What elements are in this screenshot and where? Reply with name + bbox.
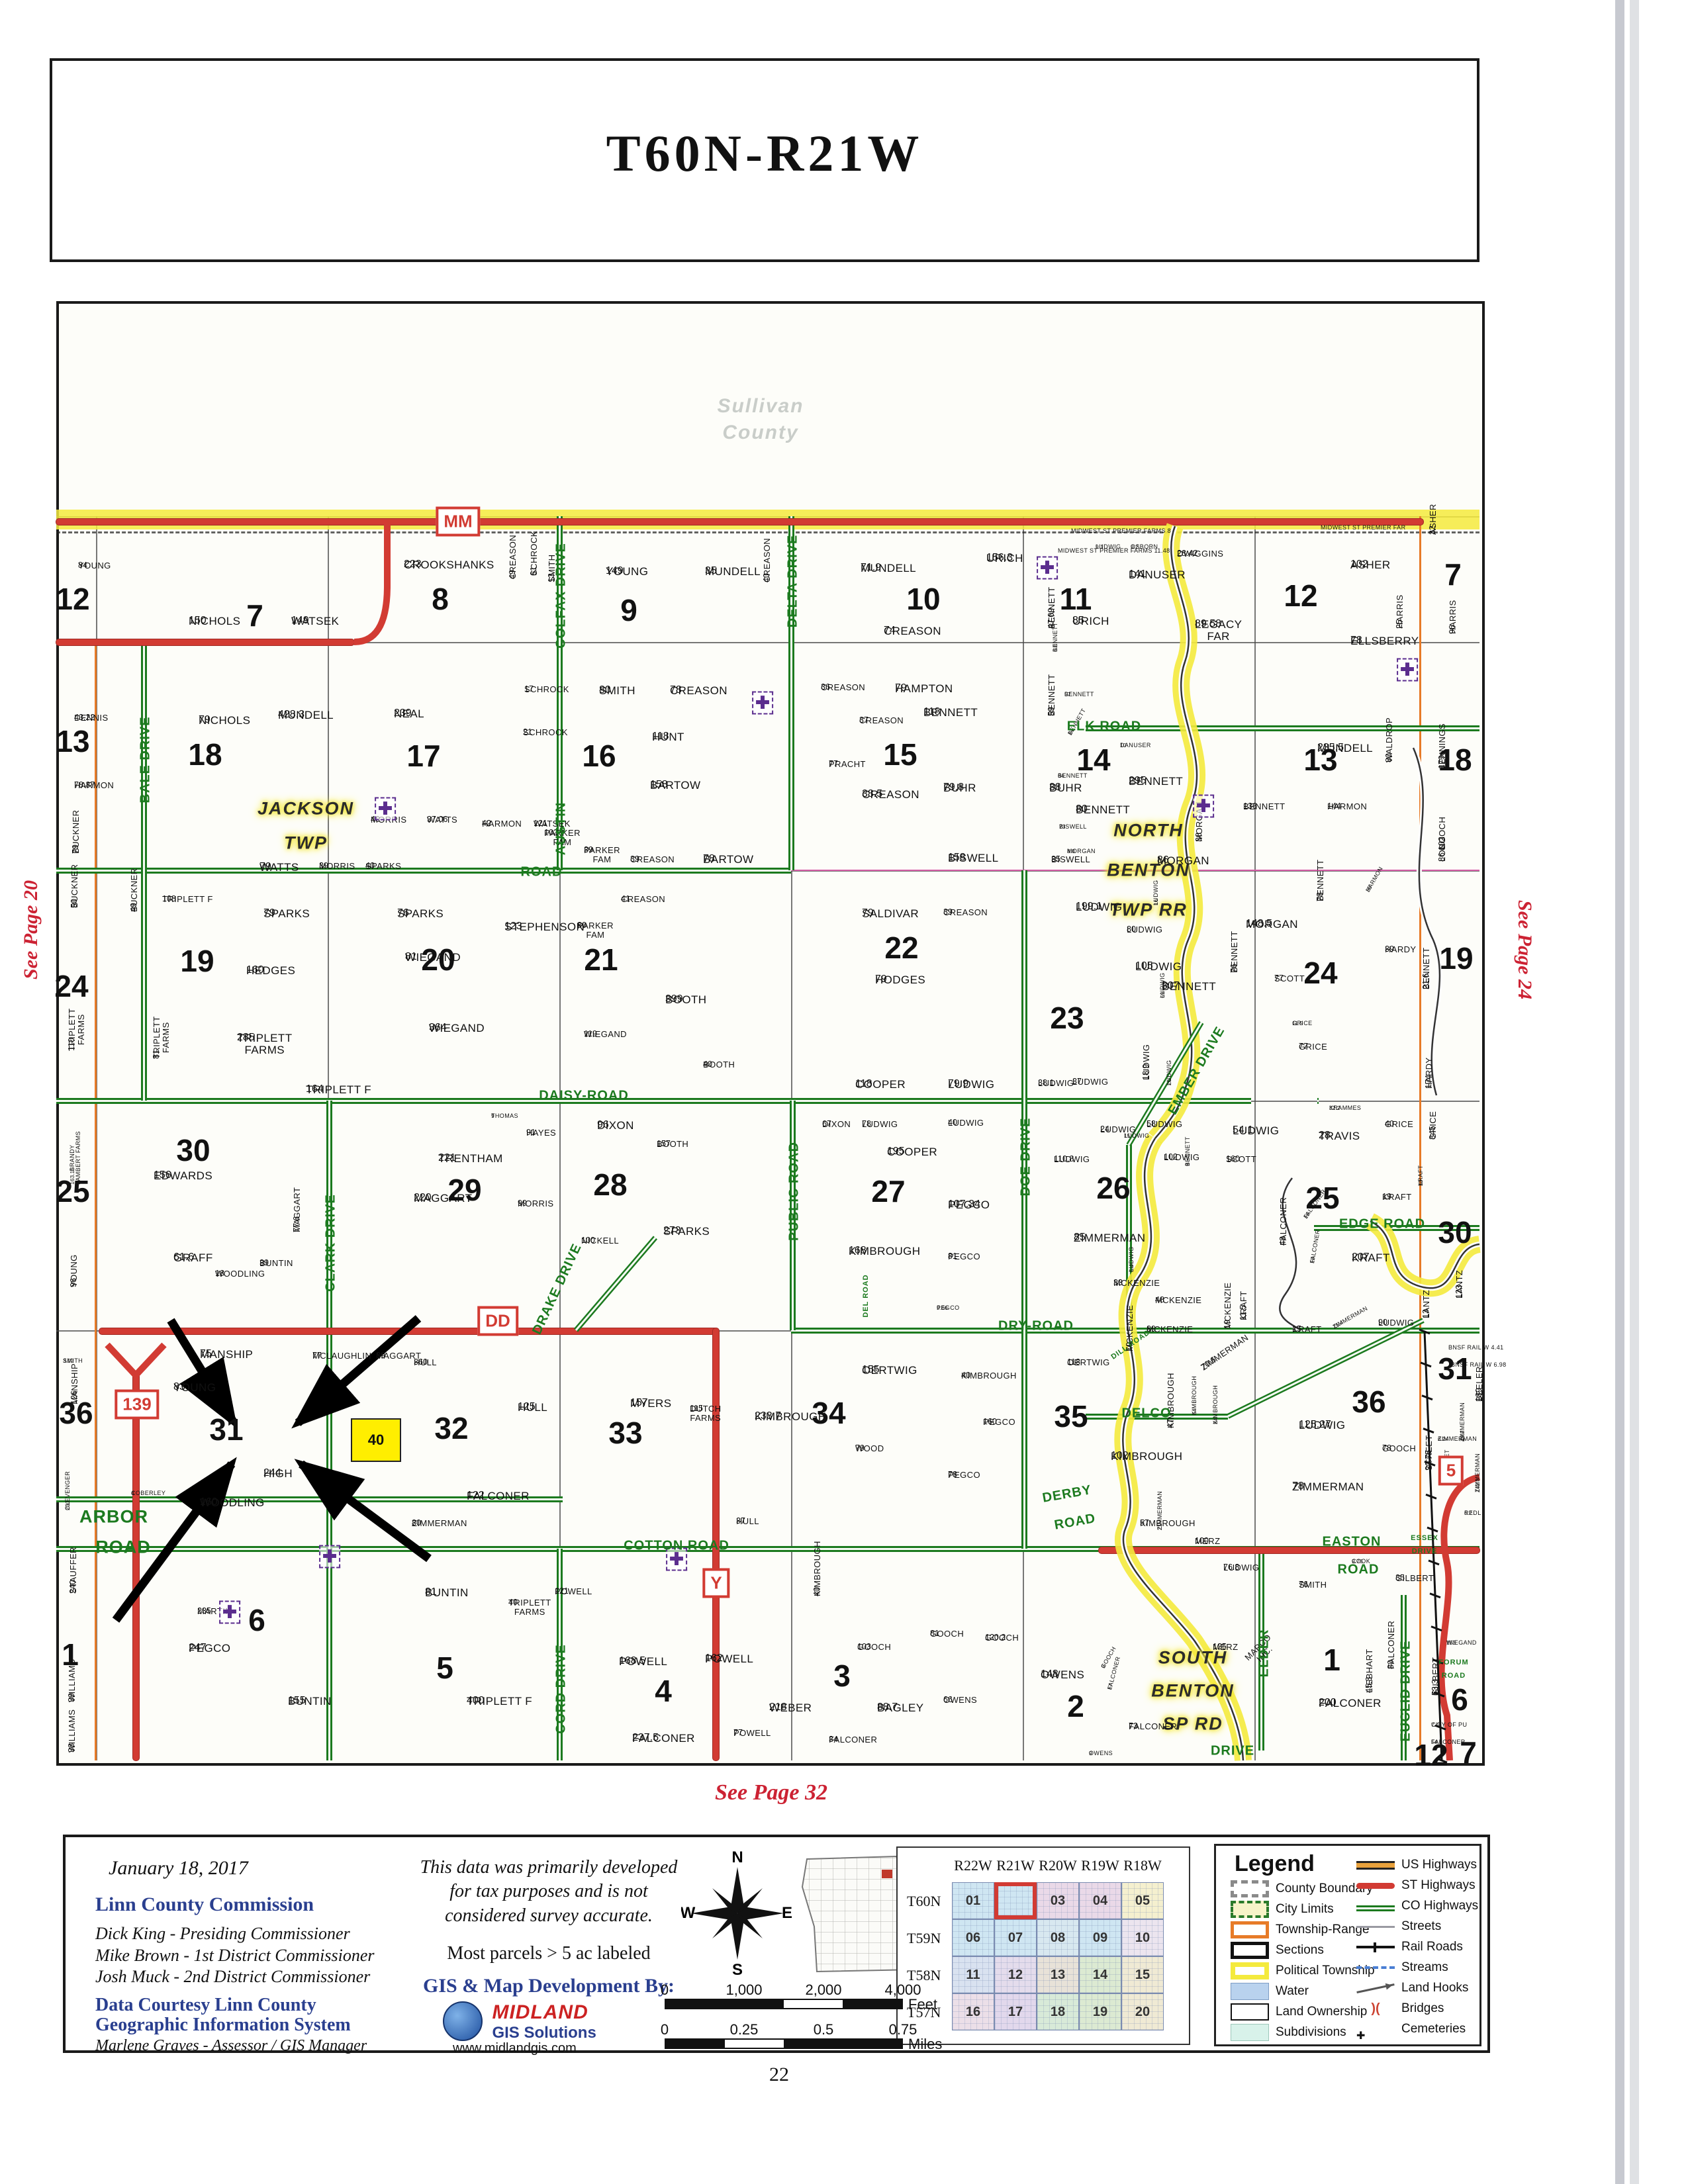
legend-label: City Limits (1276, 1902, 1334, 1917)
poltwp-swatch (1231, 1962, 1269, 1979)
section-number: 22 (884, 930, 918, 966)
legend-item: City Limits (1231, 1901, 1334, 1918)
subdiv-swatch (1231, 2024, 1269, 2041)
svg-text:E: E (782, 1904, 792, 1922)
road-name-label: ARBOR (79, 1507, 148, 1527)
section-number: 24 (54, 968, 88, 1004)
section-number: 21 (584, 942, 618, 978)
globe-icon (443, 2001, 483, 2041)
road-name-label: ELDER (1257, 1629, 1272, 1678)
locator-cell: 06 (952, 1919, 994, 1956)
locator-cell: 10 (1121, 1919, 1164, 1956)
section-number: 30 (176, 1132, 210, 1168)
cemetery-icon: ✚ (1397, 659, 1418, 682)
locator-cell: 15 (1121, 1956, 1164, 1993)
road-name-label: DELTA DRIVE (786, 535, 801, 628)
scale-tick: 2,000 (805, 1981, 841, 1999)
cemetery-icon: ✚ (219, 1601, 240, 1624)
section-number: 19 (1439, 940, 1473, 976)
stream-icon (1356, 1966, 1395, 1969)
section-number: 26 (1096, 1170, 1130, 1206)
road-name-label: CORD DRIVE (554, 1644, 569, 1734)
page-title: T60N-R21W (52, 124, 1477, 183)
locator-col-header: R21W (994, 1857, 1037, 1874)
legend-item: County Boundary (1231, 1880, 1373, 1897)
see-page-left: See Page 20 (20, 880, 42, 979)
locator-row-header: T59N (907, 1930, 941, 1947)
section-number: 12 (56, 581, 89, 617)
section-number: 9 (620, 592, 637, 628)
section-number: 32 (434, 1410, 468, 1446)
compass-rose: N W E S (681, 1850, 794, 1979)
section-number: 5 (436, 1650, 453, 1686)
sections-swatch (1231, 1942, 1269, 1959)
locator-cell: 19 (1079, 1993, 1121, 2030)
road-name-label: ROAD (95, 1537, 151, 1558)
logo-line1: MIDLAND (492, 2001, 588, 2023)
commissioner-line: Mike Brown - 1st District Commissioner (95, 1945, 375, 1967)
street-icon (1356, 1926, 1395, 1928)
road-name-label: DAISY-ROAD (539, 1089, 629, 1104)
scalebar-miles: 00.250.50.75Miles (665, 2021, 949, 2052)
gis-by-label: GIS & Map Development By: (423, 1975, 675, 1997)
road-name-label: DRY-ROAD (998, 1319, 1074, 1334)
hook-icon (1356, 1983, 1394, 1993)
co-icon (1356, 1905, 1395, 1907)
legend-label: Streams (1401, 1960, 1448, 1975)
legend-label: Rail Roads (1401, 1940, 1463, 1954)
road-name-label: FORUM (1438, 1659, 1468, 1666)
road-name-label: ESSEX (1411, 1534, 1438, 1542)
highway-shield: 5 (1438, 1456, 1464, 1486)
legend-item: Rail Roads (1356, 1940, 1463, 1954)
section-number: 30 (1438, 1214, 1472, 1250)
legend-label: Land Hooks (1401, 1981, 1468, 1995)
section-number: 16 (582, 738, 616, 774)
see-page-right: See Page 24 (1513, 900, 1536, 999)
road-name-label: DRIVE (1211, 1744, 1254, 1759)
section-number: 2 (1067, 1688, 1084, 1724)
section-number: 19 (180, 943, 214, 979)
locator-cell: 01 (952, 1882, 994, 1919)
locator-cell: 16 (952, 1993, 994, 2030)
footer-panel: January 18, 2017 Linn County Commission … (63, 1835, 1490, 2053)
legend-item: Sections (1231, 1942, 1324, 1959)
section-number: 11 (1060, 581, 1092, 617)
highway-shield: 139 (115, 1390, 159, 1420)
section-number: 4 (655, 1673, 672, 1709)
water-swatch (1231, 1983, 1269, 2000)
locator-cell (994, 1882, 1037, 1919)
cemetery-icon: ✚ (319, 1545, 340, 1569)
locator-cell: 14 (1079, 1956, 1121, 1993)
locator-cell: 12 (994, 1956, 1037, 1993)
road-name-label: COTTON ROAD (624, 1539, 729, 1554)
legend-title: Legend (1235, 1851, 1315, 1877)
scale-bar (665, 2038, 903, 2049)
section-number: 10 (906, 581, 940, 617)
midland-logo: MIDLAND GIS Solutions (443, 2001, 596, 2044)
disclaimer-text: This data was primarily developedfor tax… (410, 1856, 688, 1928)
county-swatch (1231, 1880, 1269, 1897)
assessor-credit: Marlene Graves - Assessor / GIS Manager (95, 2036, 367, 2056)
road-name-label: EASTON (1323, 1535, 1382, 1550)
commissioner-line: Dick King - Presiding Commissioner (95, 1923, 375, 1945)
legend-label: Streets (1401, 1919, 1441, 1934)
scale-tick: 0 (661, 1981, 669, 1999)
disclaimer-line: This data was primarily developed (410, 1856, 688, 1880)
courtesy-line1: Data Courtesy Linn County (95, 1995, 316, 2016)
scale-tick: 1,000 (726, 1981, 762, 1999)
section-number: 17 (406, 738, 440, 774)
courtesy-line2: Geographic Information System (95, 2015, 351, 2036)
highway-shield: DD (477, 1306, 518, 1336)
map-area: Sullivan County 40YOUNG84NICHOLS150WATSE… (56, 301, 1485, 1766)
legend-label: US Highways (1401, 1858, 1477, 1872)
title-box: T60N-R21W (50, 58, 1479, 262)
locator-row-header: T60N (907, 1893, 941, 1910)
section-number: 23 (1050, 1000, 1084, 1036)
legend-label: CO Highways (1401, 1899, 1478, 1913)
legend-item: ST Highways (1356, 1878, 1476, 1893)
road-name-label: ELK ROAD (1067, 719, 1141, 735)
section-number: 6 (248, 1602, 265, 1638)
township-name: NORTH (1113, 821, 1184, 841)
scan-artifact (1630, 0, 1639, 2184)
legend-box: Legend County BoundaryCity LimitsTownshi… (1214, 1844, 1481, 2046)
road-name-label: ROAD (1442, 1672, 1466, 1680)
us-icon (1356, 1863, 1395, 1868)
section-number: 3 (833, 1658, 851, 1694)
section-number: 36 (1352, 1384, 1385, 1420)
section-number: 24 (1303, 955, 1337, 991)
legend-label: Land Ownership (1276, 2005, 1367, 2019)
legend-item: Subdivisions (1231, 2024, 1346, 2041)
locator-cell: 05 (1121, 1882, 1164, 1919)
highlighted-parcel: 40 (351, 1418, 401, 1462)
road-name-label: COLFAX DRIVE (554, 543, 569, 649)
legend-label: Township-Range (1276, 1923, 1370, 1937)
township-name: TWP (284, 833, 328, 854)
road-name-label: DRIVE (1412, 1547, 1438, 1555)
scan-artifact (1615, 0, 1624, 2184)
road-name-label: PUBLIC ROAD (787, 1142, 802, 1241)
road-name-label: EUCLID DRIVE (1399, 1640, 1414, 1741)
road-name-label: DEL ROAD (862, 1274, 870, 1317)
section-number: 35 (1054, 1398, 1088, 1434)
legend-label: ST Highways (1401, 1878, 1476, 1893)
locator-cell: 09 (1079, 1919, 1121, 1956)
legend-label: Water (1276, 1984, 1309, 1999)
legend-item: Water (1231, 1983, 1309, 2000)
highlighted-parcel-label: 40 (368, 1432, 384, 1449)
road-name-label: BALE DRIVE (138, 716, 154, 803)
road-name-label: ROAD (521, 865, 563, 880)
locator-cell: 03 (1037, 1882, 1079, 1919)
township-name: JACKSON (258, 799, 354, 819)
legend-item: Land Ownership (1231, 2003, 1367, 2021)
legend-item: US Highways (1356, 1858, 1477, 1872)
legend-label: Bridges (1401, 2001, 1444, 2016)
section-number: 12 (1284, 578, 1317, 614)
cemetery-icon: ✚ (752, 692, 773, 715)
svg-text:N: N (731, 1850, 743, 1866)
cemetery-icon: ✚ (375, 797, 396, 821)
legend-item: ✚Cemeteries (1356, 2022, 1466, 2036)
disclaimer-line: for tax purposes and is not (410, 1880, 688, 1903)
section-number: 1 (1323, 1642, 1340, 1678)
locator-col-header: R20W (1037, 1857, 1079, 1874)
commissioners-list: Dick King - Presiding CommissionerMike B… (95, 1923, 375, 1988)
legend-item: )(Bridges (1356, 2001, 1444, 2016)
section-number: 8 (432, 581, 449, 617)
locator-cell: 13 (1037, 1956, 1079, 1993)
road-name-label: DELCO (1122, 1406, 1172, 1422)
legend-label: Cemeteries (1401, 2022, 1466, 2036)
scale-tick: 0.5 (814, 2021, 834, 2038)
commissioner-line: Josh Muck - 2nd District Commissioner (95, 1966, 375, 1988)
see-page-bottom: See Page 32 (715, 1780, 827, 1805)
locator-cell: 04 (1079, 1882, 1121, 1919)
road-name-label: CLARK DRIVE (324, 1194, 339, 1292)
locator-col-header: R19W (1079, 1857, 1121, 1874)
svg-text:W: W (681, 1904, 696, 1922)
landown-swatch (1231, 2003, 1269, 2021)
twprange-swatch (1231, 1921, 1269, 1938)
locator-col-header: R18W (1121, 1857, 1164, 1874)
section-number: 31 (1438, 1351, 1472, 1387)
bridge-icon: )( (1356, 2002, 1395, 2015)
logo-url: www.midlandgis.com (453, 2041, 577, 2056)
scalebar-feet: 01,0002,0004,000Feet (665, 1981, 949, 2012)
locator-cell: 11 (952, 1956, 994, 1993)
cemetery-icon: ✚ (1193, 795, 1214, 818)
legend-label: Sections (1276, 1943, 1324, 1958)
road-name-label: AUSTIN (554, 802, 569, 855)
footer-date: January 18, 2017 (109, 1857, 248, 1880)
disclaimer-line: considered survey accurate. (410, 1904, 688, 1928)
scale-tick: 0 (661, 2021, 669, 2038)
legend-item: Political Township (1231, 1962, 1375, 1979)
locator-cell: 18 (1037, 1993, 1079, 2030)
section-number: 33 (608, 1415, 642, 1451)
road-name-label: ROAD (1338, 1563, 1380, 1578)
plat-map-page: T60N-R21W See Page 20 See Page 24 See Pa… (0, 0, 1688, 2184)
highway-shield: Y (702, 1569, 729, 1598)
locator-cell: 17 (994, 1993, 1037, 2030)
commission-title: Linn County Commission (95, 1893, 314, 1916)
st-icon (1356, 1883, 1395, 1889)
legend-item: Land Hooks (1356, 1981, 1468, 1995)
highway-shield: MM (436, 507, 480, 537)
legend-item: Township-Range (1231, 1921, 1370, 1938)
scale-bar (665, 1999, 903, 2009)
scale-unit: Feet (908, 1996, 937, 2013)
legend-item: Streets (1356, 1919, 1441, 1934)
scale-tick: 0.25 (730, 2021, 759, 2038)
section-number: 15 (883, 737, 917, 772)
legend-item: Streams (1356, 1960, 1448, 1975)
page-number: 22 (769, 2064, 789, 2086)
legend-label: Subdivisions (1276, 2025, 1346, 2040)
section-number: 27 (871, 1173, 905, 1209)
township-name: BENTON (1151, 1681, 1235, 1702)
section-number: 18 (188, 737, 222, 772)
township-locator-grid: R22WR21WR20WR19WR18WT60NT59NT58NT57N0103… (896, 1846, 1190, 2045)
locator-col-header: R22W (952, 1857, 994, 1874)
locator-cell: 07 (994, 1919, 1037, 1956)
locator-cell: 08 (1037, 1919, 1079, 1956)
city-swatch (1231, 1901, 1269, 1918)
section-number: 7 (1444, 557, 1462, 592)
scale-unit: Miles (908, 2036, 942, 2053)
locator-cell: 20 (1121, 1993, 1164, 2030)
section-number: 31 (209, 1412, 243, 1447)
logo-line2: GIS Solutions (492, 2024, 596, 2042)
section-number: 7 (246, 598, 263, 633)
section-number: 28 (593, 1167, 627, 1203)
road-name-label: EDGE ROAD (1339, 1217, 1425, 1232)
rail-icon (1356, 1946, 1395, 1948)
section-number: 6 (1451, 1682, 1468, 1717)
section-number: 13 (56, 723, 89, 759)
pointer-arrow (298, 1318, 418, 1423)
road-name-label: DOE DRIVE (1019, 1117, 1034, 1196)
parcels-note: Most parcels > 5 ac labeled (410, 1943, 688, 1964)
legend-item: CO Highways (1356, 1899, 1478, 1913)
svg-text:S: S (732, 1961, 743, 1976)
pointer-arrow (171, 1320, 233, 1422)
cemetery-icon: ✚ (1037, 557, 1058, 580)
